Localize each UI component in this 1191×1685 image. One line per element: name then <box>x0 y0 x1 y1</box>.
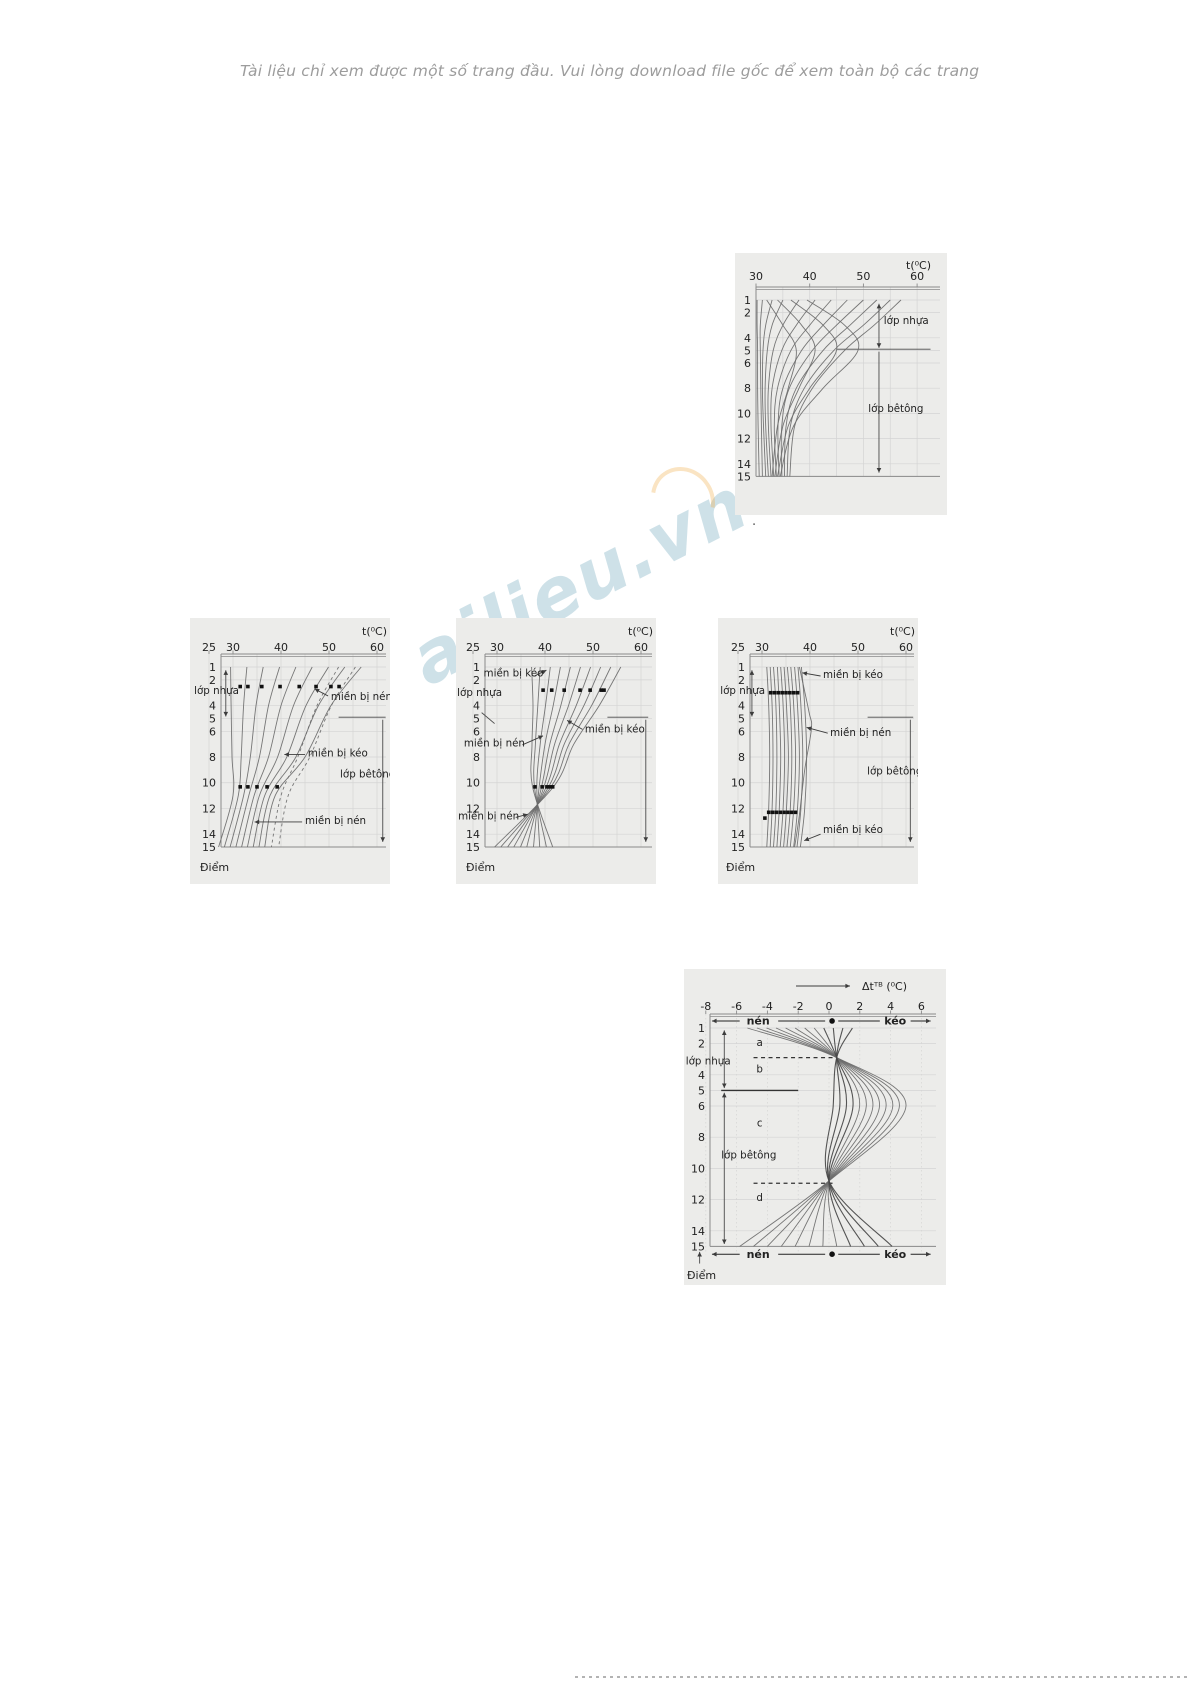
data-dot <box>314 685 318 689</box>
data-dot <box>763 816 767 820</box>
level-tick-label: 4 <box>473 700 480 713</box>
level-tick-label: 4 <box>209 700 216 713</box>
axis-title: t(⁰C) <box>362 625 387 638</box>
data-dot <box>246 685 250 689</box>
annotation-label: a <box>757 1037 763 1049</box>
x-tick-label: 25 <box>466 641 480 654</box>
data-dot <box>541 688 545 692</box>
compression-label: nén <box>747 1015 770 1028</box>
annotation-label: miền bị kéo <box>823 669 883 681</box>
level-tick-label: 5 <box>744 344 751 357</box>
annotation-label: miền bị nén <box>305 815 366 827</box>
level-tick-label: 15 <box>202 841 216 854</box>
page-bottom-dotted-line <box>575 1676 1191 1678</box>
level-tick-label: 8 <box>698 1131 705 1144</box>
x-tick-label: 60 <box>899 641 913 654</box>
level-tick-label: 1 <box>209 661 216 674</box>
arrowhead <box>722 1083 727 1088</box>
data-dot <box>794 811 798 815</box>
x-tick-label: 60 <box>370 641 384 654</box>
data-dot <box>540 785 544 789</box>
arrowhead <box>712 1252 717 1257</box>
level-tick-label: 6 <box>209 725 216 738</box>
annotation-label: c <box>757 1117 763 1129</box>
level-tick-label: 14 <box>466 828 480 841</box>
level-tick-label: 12 <box>731 802 745 815</box>
x-tick-label: 50 <box>856 270 870 283</box>
watermark-arc <box>638 454 728 545</box>
compression-label: nén <box>747 1248 770 1261</box>
data-dot <box>260 685 264 689</box>
y-axis-label: Điểm <box>466 861 495 874</box>
chart-delta-t-average: -8-6-4-2024612456810121415Δtᵀᴮ (⁰C)nénké… <box>684 969 946 1285</box>
annotation-label: miền bị nén <box>458 810 519 822</box>
x-tick-label: 40 <box>274 641 288 654</box>
annotation-label: miền bị nén <box>830 727 891 739</box>
preview-notice: Tài liệu chỉ xem được một số trang đầu. … <box>240 62 979 80</box>
level-tick-label: 6 <box>473 725 480 738</box>
data-dot <box>278 685 282 689</box>
axis-title: t(⁰C) <box>628 625 653 638</box>
temp-profile-mixed-canvas: 253040506012456810121415t(⁰C)miền bị kéo… <box>456 618 656 884</box>
level-tick-label: 10 <box>691 1162 705 1175</box>
level-tick-label: 5 <box>209 712 216 725</box>
x-tick-label: -6 <box>731 1000 742 1013</box>
y-axis-label: Điểm <box>200 861 229 874</box>
x-tick-label: -2 <box>793 1000 804 1013</box>
data-dot <box>337 685 341 689</box>
annotation-label: miền bị kéo <box>308 747 368 759</box>
arrowhead <box>712 1019 717 1024</box>
annotation-label: lớp bêtông <box>340 769 390 781</box>
zero-point-dot <box>829 1251 835 1257</box>
level-tick-label: 10 <box>202 777 216 790</box>
annotation-label: lớp nhựa <box>686 1056 731 1068</box>
data-dot <box>792 691 796 695</box>
arrowhead <box>908 837 913 842</box>
level-tick-label: 1 <box>738 661 745 674</box>
data-dot <box>786 811 790 815</box>
x-tick-label: 50 <box>586 641 600 654</box>
level-tick-label: 14 <box>731 828 745 841</box>
annotation-label: lớp nhựa <box>884 315 929 327</box>
data-dot <box>777 691 781 695</box>
x-tick-label: 50 <box>322 641 336 654</box>
x-tick-label: 50 <box>851 641 865 654</box>
data-dot <box>778 811 782 815</box>
x-tick-label: 30 <box>226 641 240 654</box>
arrowhead <box>722 1239 727 1244</box>
level-tick-label: 8 <box>473 751 480 764</box>
arrowhead <box>877 304 882 309</box>
data-dot <box>265 785 269 789</box>
data-dot <box>780 691 784 695</box>
data-dot <box>588 688 592 692</box>
x-tick-label: -8 <box>700 1000 711 1013</box>
annotation-label: miền bị kéo <box>484 668 544 680</box>
x-tick-label: 4 <box>887 1000 894 1013</box>
level-tick-label: 4 <box>744 332 751 345</box>
data-dot <box>255 785 259 789</box>
x-tick-label: 40 <box>803 641 817 654</box>
level-tick-label: 10 <box>466 777 480 790</box>
x-tick-label: 60 <box>634 641 648 654</box>
data-dot <box>533 785 537 789</box>
level-tick-label: 6 <box>738 725 745 738</box>
level-tick-label: 6 <box>744 357 751 370</box>
data-dot <box>578 688 582 692</box>
arrowhead <box>877 343 882 348</box>
level-tick-label: 10 <box>731 777 745 790</box>
x-tick-label: 0 <box>826 1000 833 1013</box>
axis-title: t(⁰C) <box>890 625 915 638</box>
level-tick-label: 8 <box>738 751 745 764</box>
annotation-label: lớp bêtông <box>867 765 918 777</box>
arrowhead <box>722 1093 727 1098</box>
annotation-label: b <box>756 1063 763 1075</box>
level-tick-label: 12 <box>691 1194 705 1207</box>
data-dot <box>773 691 777 695</box>
annotation-label: miền bị kéo <box>823 824 883 836</box>
x-tick-label: 40 <box>803 270 817 283</box>
arrowhead <box>877 468 882 473</box>
level-tick-label: 12 <box>202 802 216 815</box>
level-tick-label: 2 <box>698 1038 705 1051</box>
data-dot <box>788 691 792 695</box>
stray-dot: . <box>752 514 756 529</box>
data-dot <box>550 688 554 692</box>
annotation-label: lớp nhựa <box>720 685 765 697</box>
temp-profile-main-canvas: 3040506012456810121415t(⁰C)lớp nhựalớp b… <box>735 253 947 515</box>
arrowhead <box>284 752 289 757</box>
annotation-label: lớp bêtông <box>721 1149 776 1161</box>
level-tick-label: 8 <box>744 382 751 395</box>
arrowhead <box>845 984 850 989</box>
arrowhead <box>926 1252 931 1257</box>
level-tick-label: 8 <box>209 751 216 764</box>
x-tick-label: 6 <box>918 1000 925 1013</box>
level-tick-label: 12 <box>737 433 751 446</box>
annotation-label: d <box>756 1192 763 1204</box>
level-tick-label: 15 <box>731 841 745 854</box>
data-dot <box>275 785 279 789</box>
level-tick-label: 14 <box>737 458 751 471</box>
arrowhead <box>802 671 807 676</box>
annotation-label: lớp bêtông <box>868 403 923 415</box>
annotation-label: lớp nhựa <box>457 687 502 699</box>
x-tick-label: 40 <box>538 641 552 654</box>
level-tick-label: 2 <box>473 674 480 687</box>
chart-temp-profile-cooling: 253040506012456810121415t(⁰C)miền bị kéo… <box>718 618 918 884</box>
data-dot <box>297 685 301 689</box>
y-axis-label: Điểm <box>687 1269 716 1282</box>
zero-point-dot <box>829 1018 835 1024</box>
arrowhead <box>224 712 229 717</box>
data-dot <box>562 688 566 692</box>
y-axis-label: Điểm <box>726 861 755 874</box>
data-dot <box>782 811 786 815</box>
data-dot <box>769 691 773 695</box>
arrowhead <box>926 1019 931 1024</box>
x-tick-label: 25 <box>731 641 745 654</box>
axis-title: Δtᵀᴮ (⁰C) <box>862 980 907 993</box>
data-dot <box>602 688 606 692</box>
data-dot <box>246 785 250 789</box>
chart-temp-profile-main: 3040506012456810121415t(⁰C)lớp nhựalớp b… <box>735 253 947 515</box>
data-dot <box>771 811 775 815</box>
x-tick-label: -4 <box>762 1000 773 1013</box>
x-tick-label: 30 <box>755 641 769 654</box>
x-tick-label: 2 <box>856 1000 863 1013</box>
level-tick-label: 14 <box>691 1225 705 1238</box>
x-tick-label: 30 <box>749 270 763 283</box>
document-page: Tài liệu chỉ xem được một số trang đầu. … <box>0 0 1191 1685</box>
temp-profile-cooling-canvas: 253040506012456810121415t(⁰C)miền bị kéo… <box>718 618 918 884</box>
x-tick-label: 30 <box>490 641 504 654</box>
level-tick-label: 1 <box>744 294 751 307</box>
arrowhead <box>722 1030 727 1035</box>
delta-t-average-canvas: -8-6-4-2024612456810121415Δtᵀᴮ (⁰C)nénké… <box>684 969 946 1285</box>
level-tick-label: 14 <box>202 828 216 841</box>
level-tick-label: 4 <box>738 700 745 713</box>
arrowhead <box>380 837 385 842</box>
annotation-label: lớp nhựa <box>194 685 239 697</box>
data-dot <box>796 691 800 695</box>
level-tick-label: 5 <box>698 1084 705 1097</box>
data-dot <box>775 811 779 815</box>
data-dot <box>238 785 242 789</box>
tension-label: kéo <box>884 1248 906 1261</box>
chart-temp-profile-mixed: 253040506012456810121415t(⁰C)miền bị kéo… <box>456 618 656 884</box>
level-tick-label: 10 <box>737 407 751 420</box>
arrowhead <box>644 837 649 842</box>
level-tick-label: 1 <box>698 1022 705 1035</box>
tension-label: kéo <box>884 1015 906 1028</box>
data-dot <box>767 811 771 815</box>
level-tick-label: 5 <box>738 712 745 725</box>
arrowhead <box>224 670 229 675</box>
annotation-label: miền bị kéo <box>585 724 645 736</box>
x-tick-label: 25 <box>202 641 216 654</box>
level-tick-label: 5 <box>473 712 480 725</box>
data-dot <box>551 785 555 789</box>
chart-temp-profile-asphalt-heating: 253040506012456810121415t(⁰C)lớp nhựamiề… <box>190 618 390 884</box>
data-dot <box>329 685 333 689</box>
axis-title: t(⁰C) <box>906 259 931 272</box>
data-dot <box>790 811 794 815</box>
level-tick-label: 2 <box>744 307 751 320</box>
temp-profile-asphalt-heating-canvas: 253040506012456810121415t(⁰C)lớp nhựamiề… <box>190 618 390 884</box>
level-tick-label: 15 <box>691 1240 705 1253</box>
level-tick-label: 15 <box>466 841 480 854</box>
annotation-label: miền bị nén <box>464 738 525 750</box>
level-tick-label: 4 <box>698 1069 705 1082</box>
annotation-label: miền bị nén <box>331 691 390 703</box>
data-dot <box>784 691 788 695</box>
level-tick-label: 1 <box>473 661 480 674</box>
level-tick-label: 6 <box>698 1100 705 1113</box>
level-tick-label: 15 <box>737 470 751 483</box>
